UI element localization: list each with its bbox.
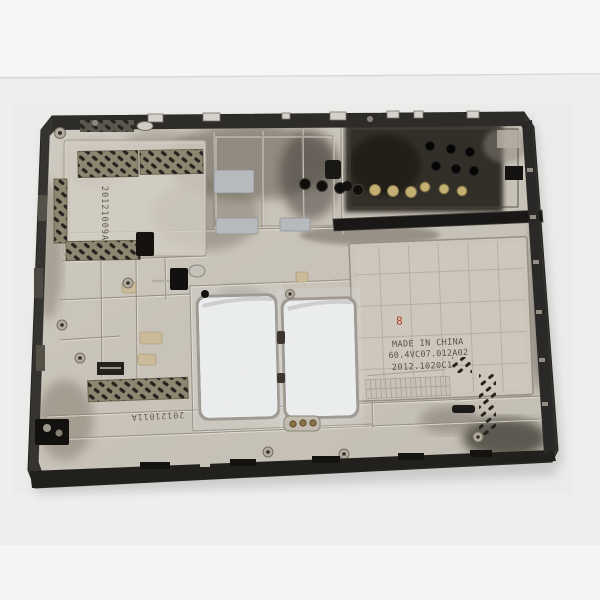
black-dot [201, 290, 209, 298]
memory-cutouts [195, 293, 359, 421]
silver-boss [189, 265, 205, 277]
small-black-slot [452, 405, 475, 413]
vent-grille-top-1 [78, 150, 138, 177]
lock-latch-assembly [35, 419, 69, 445]
rim-vent [80, 120, 134, 132]
vent-grille-left [54, 179, 67, 243]
memory-cutout-left [195, 293, 280, 421]
laptop-bottom-case: 20121009A [28, 111, 558, 488]
inspection-mark: 8 [396, 315, 403, 328]
black-block [325, 160, 341, 179]
contact-pad [284, 416, 320, 431]
laptop-base-photo: 20121009A [0, 0, 600, 600]
black-connector-1 [136, 232, 154, 256]
vent-grille-top-2 [140, 149, 203, 174]
background-bottom-band [0, 545, 600, 600]
memory-cutout-right [280, 296, 359, 420]
black-hole-mid [342, 181, 352, 191]
vent-grille-bottom [66, 240, 140, 260]
center-rib-slot-1 [277, 331, 285, 344]
rim-screw-left [92, 120, 98, 126]
corner-slot [505, 166, 523, 180]
bottom-left-vent [88, 377, 189, 401]
black-connector-2 [170, 268, 188, 290]
rim-screw-right [367, 116, 373, 122]
serial-stamp-side: 20121009A [99, 186, 109, 241]
battery-bay: 20121009A [54, 140, 206, 261]
brass-holes-row [370, 185, 417, 198]
corner-bracket [497, 130, 521, 148]
latch-hole [137, 122, 153, 131]
photo-viewport: 20121009A [0, 0, 600, 600]
center-rib-slot-2 [277, 373, 285, 383]
background-top-band [0, 0, 600, 76]
bottom-rail-clip [200, 461, 210, 467]
